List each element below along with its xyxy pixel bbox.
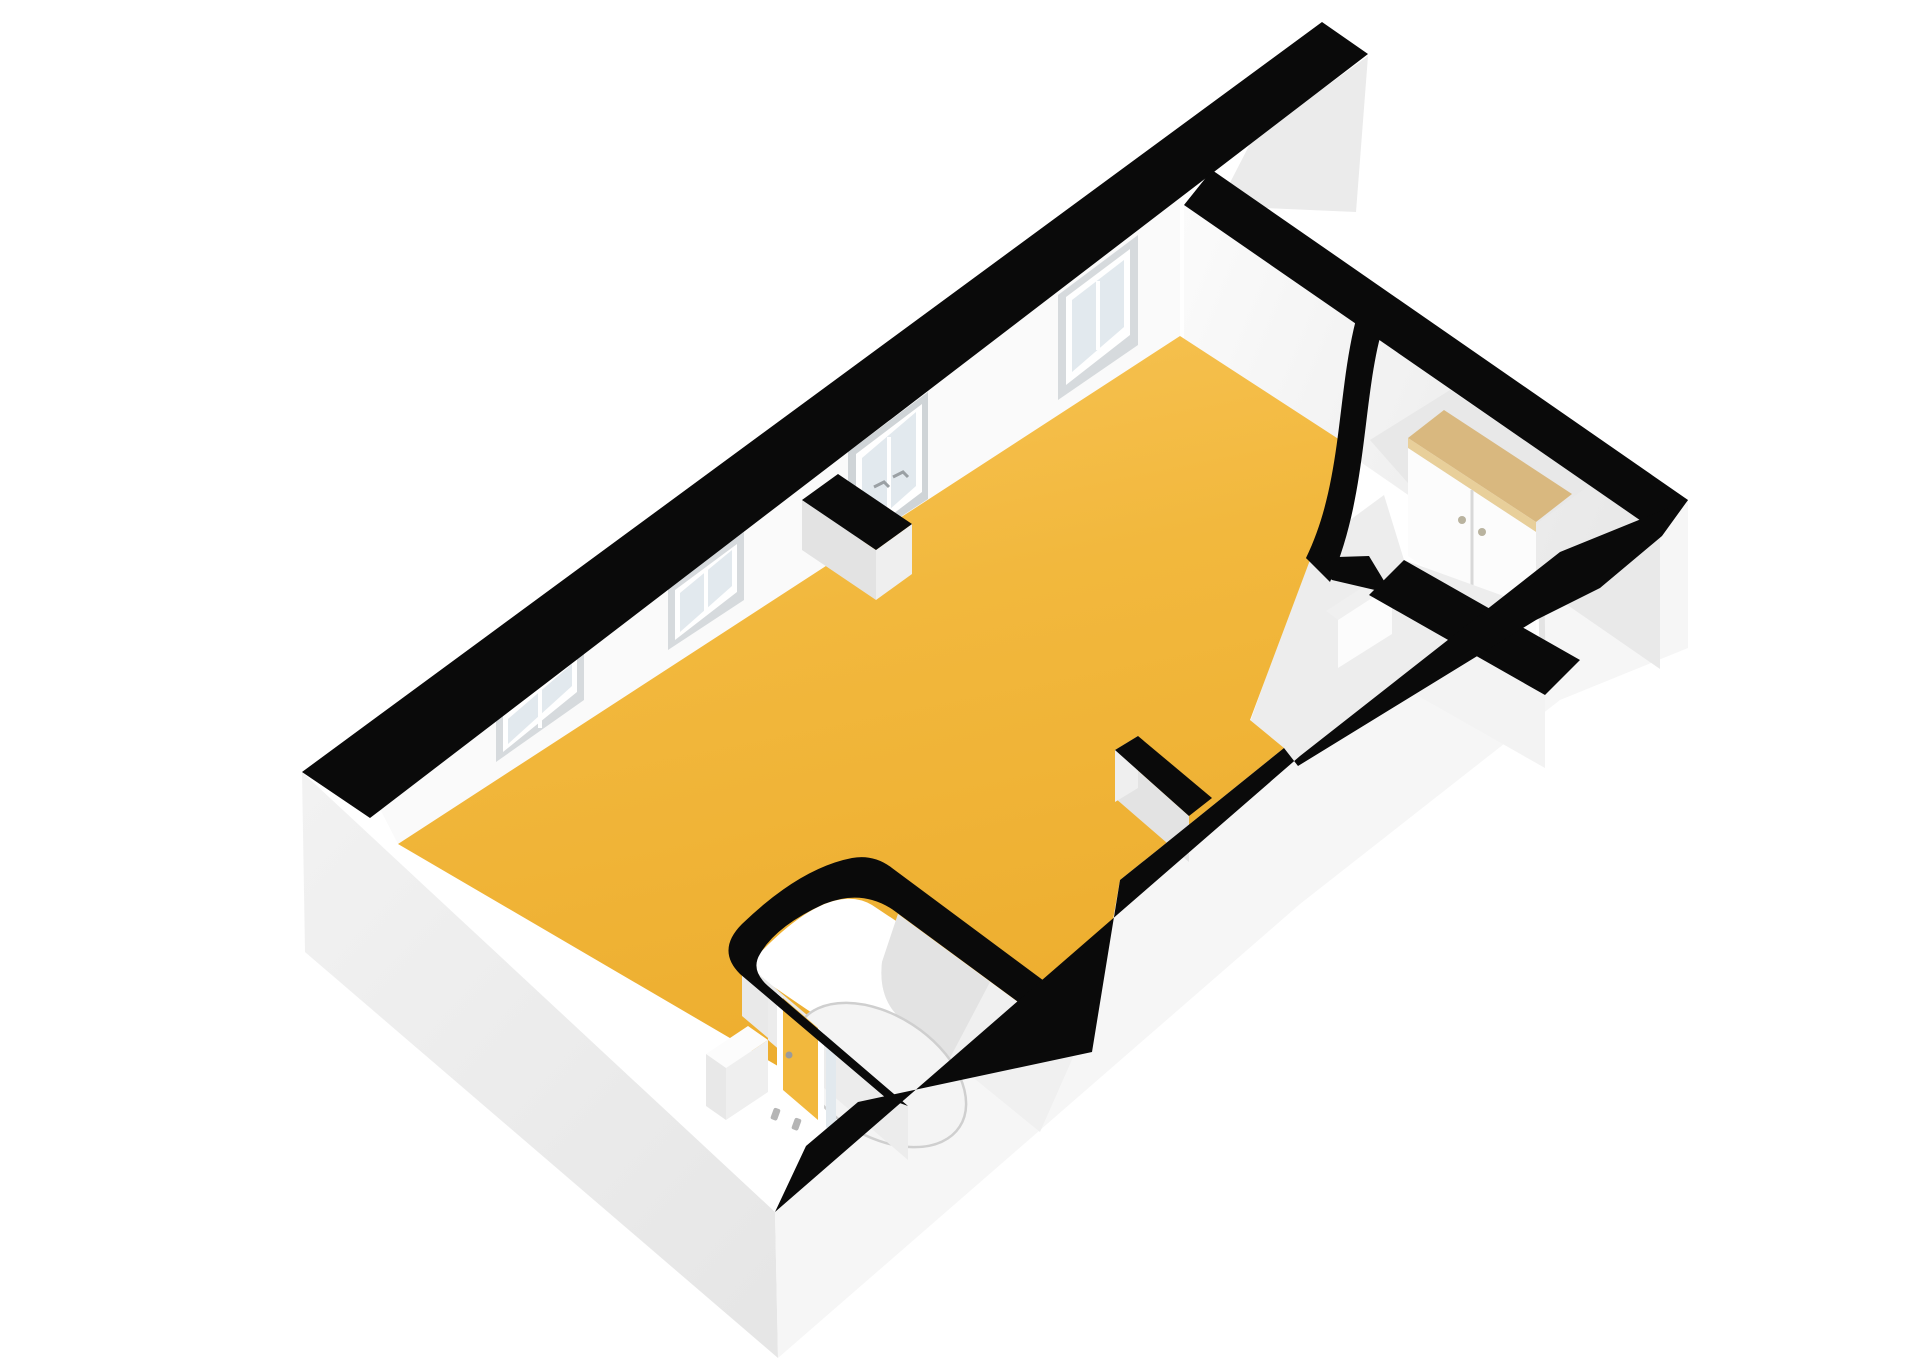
bathroom-door-handle [786, 1052, 793, 1059]
shower-handle-left [770, 1107, 781, 1121]
wardrobe-knob-left [1458, 516, 1466, 524]
wardrobe-knob-right [1478, 528, 1486, 536]
floor-plan-svg [0, 0, 1920, 1358]
shower-handle-right [791, 1117, 802, 1131]
vanity [706, 1026, 768, 1120]
floor-plan-page [0, 0, 1920, 1358]
